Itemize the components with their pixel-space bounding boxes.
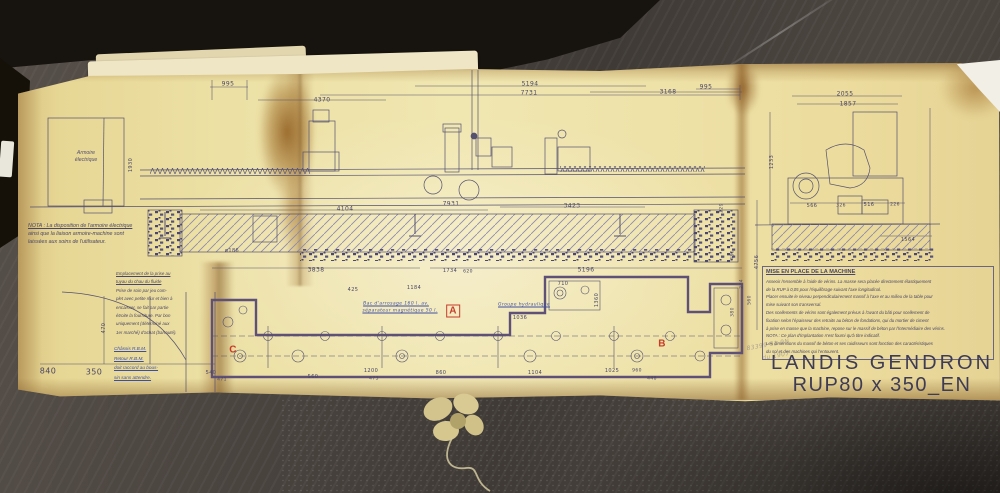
dim-label: 995 — [700, 84, 713, 91]
dim-label: 1564 — [901, 237, 915, 243]
dim-label: 480 — [731, 250, 736, 260]
dim-label: 326 — [836, 204, 846, 209]
red-mark-label: C — [229, 345, 237, 356]
dim-label: 1025 — [605, 368, 619, 374]
dim-label: 471 — [217, 378, 227, 383]
dim-label: 560 — [748, 295, 753, 305]
dim-label: 226 — [890, 203, 900, 208]
dim-label: 4370 — [314, 97, 331, 104]
dim-label: 540 — [206, 370, 217, 376]
dim-label: Bac d'arrosage 160 l. av. — [363, 302, 429, 307]
dim-label: 473 — [369, 377, 379, 382]
dim-label: 350 — [86, 368, 102, 377]
dim-label: 7731 — [521, 90, 538, 97]
dim-label: 2055 — [837, 91, 854, 98]
dim-label: 229 — [720, 203, 725, 213]
dim-label: 425 — [348, 287, 359, 293]
dim-label: Groupe hydraulique — [498, 303, 550, 308]
dim-label: 1104 — [528, 370, 542, 376]
dim-label: 470 — [101, 323, 107, 334]
dim-label: 995 — [222, 81, 235, 88]
dim-label: 4756 — [754, 255, 760, 269]
loose-page-edge — [0, 141, 14, 178]
dim-label: 4104 — [337, 206, 354, 213]
dim-label: 960 — [632, 369, 642, 374]
dim-label: 566 — [807, 203, 818, 209]
dim-label: séparateur magnétique 50 l. — [362, 309, 437, 314]
dim-label: 7931 — [443, 201, 460, 208]
dim-label: 620 — [463, 270, 473, 275]
dim-label: 1734 — [443, 268, 457, 274]
dim-label: 448 — [647, 377, 657, 382]
dim-label: 380 — [731, 307, 736, 317]
dim-label: 5196 — [578, 267, 595, 274]
red-mark-label: B — [658, 339, 666, 350]
dim-label: 5194 — [522, 81, 539, 88]
dim-label: 274 — [740, 279, 745, 289]
dim-label: 3838 — [308, 267, 325, 274]
dim-label: 1233 — [769, 155, 775, 169]
dim-label: 560 — [308, 374, 319, 380]
red-mark-label: A — [446, 305, 460, 318]
dim-label: 1857 — [840, 101, 857, 108]
dim-label: 3168 — [660, 89, 677, 96]
dim-label: 1360 — [594, 293, 600, 307]
photo-of-technical-drawing: Armoireélectrique NOTA : La disposition … — [0, 0, 1000, 493]
dim-label: 1036 — [513, 315, 527, 321]
dim-label: 860 — [436, 370, 447, 376]
dim-label: ø186 — [225, 248, 239, 254]
dim-label: 516 — [864, 202, 875, 208]
dim-label: 1930 — [128, 158, 134, 172]
dim-label: 3423 — [564, 203, 581, 210]
dim-label: du 1907 — [762, 350, 790, 362]
dim-label: 840 — [40, 367, 56, 376]
dim-label: 710 — [558, 281, 569, 287]
dim-label: 1184 — [407, 285, 421, 291]
dim-label: 1200 — [364, 368, 378, 374]
